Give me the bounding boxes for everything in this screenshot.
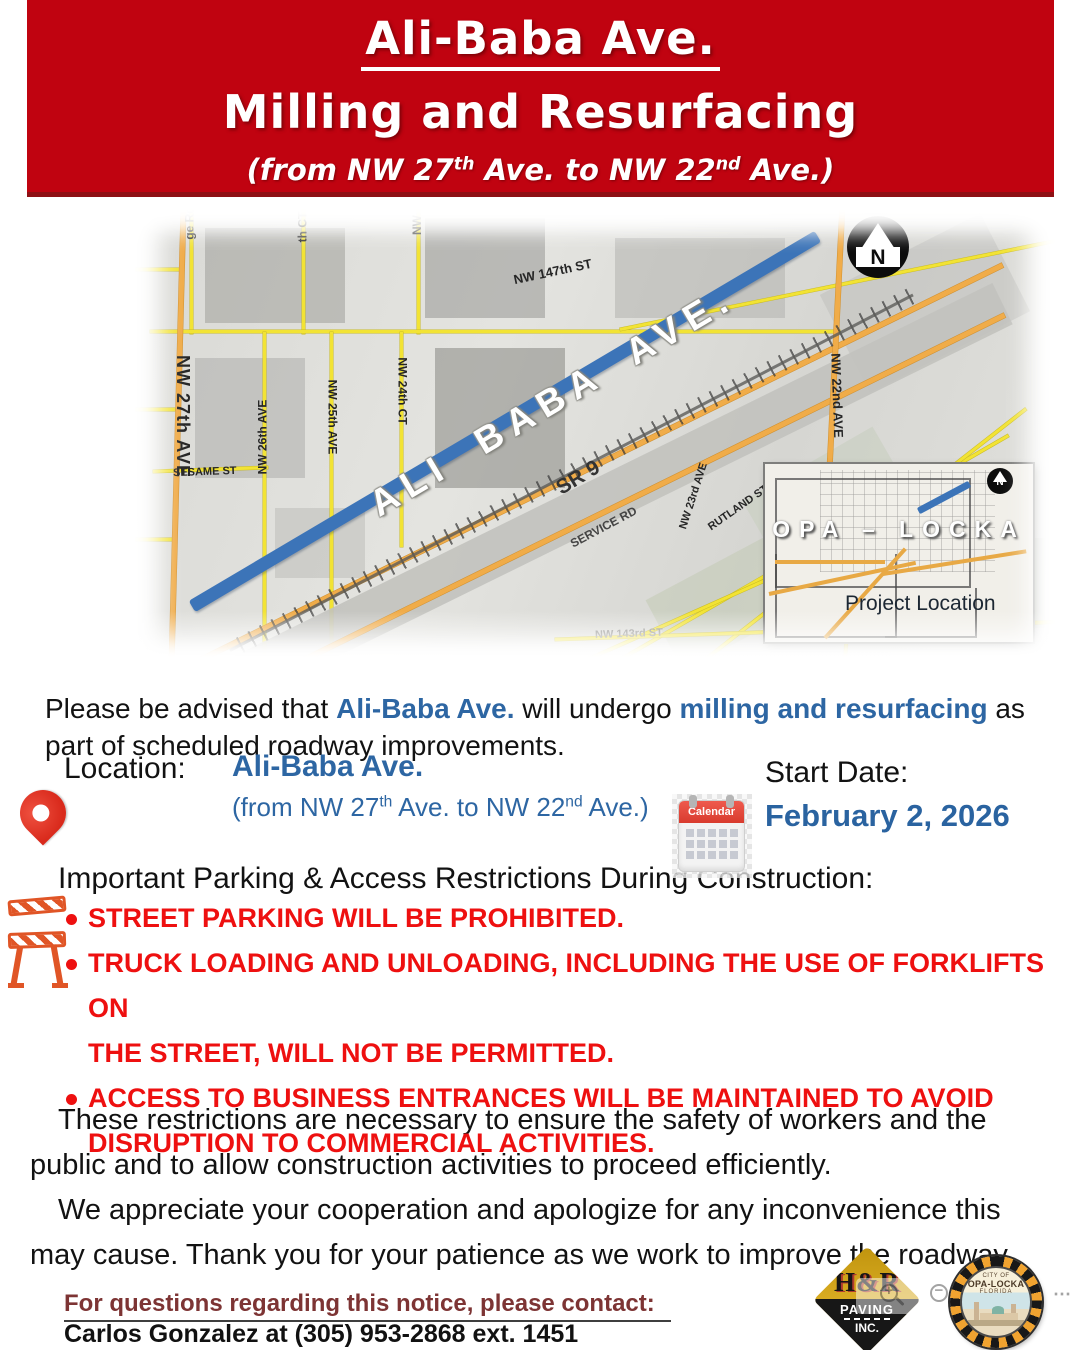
banner-range-p2: Ave. to NW 22 [474,153,715,187]
restriction-line: ACCESS TO BUSINESS ENTRANCES WILL BE MAI… [88,1076,1047,1121]
start-date-value: February 2, 2026 [765,798,1010,834]
location-range-p1: (from NW 27 [232,792,379,822]
opa-locka-city-seal: CITY OF OPA-LOCKA FLORIDA [950,1256,1042,1348]
inset-road [775,560,885,564]
location-range-sup2: nd [565,793,582,810]
restriction-item: STREET PARKING WILL BE PROHIBITED. [62,896,1047,941]
seal-name: OPA-LOCKA [962,1279,1030,1289]
banner-title: Ali-Baba Ave. [361,12,719,71]
intro-text: will undergo [515,693,680,724]
seal-skyline [968,1300,1024,1326]
hr-paving-dash [844,1318,890,1320]
restriction-line: STREET PARKING WILL BE PROHIBITED. [88,896,1047,941]
map-building [205,228,345,323]
street-label: NW 22nd AVE [828,353,846,438]
barricade-rail [7,896,66,917]
flyer-page: Ali-Baba Ave. Milling and Resurfacing (f… [0,0,1080,1350]
inset-north-arrow-icon: N [987,468,1013,494]
location-range-p2: Ave. to NW 22 [392,792,565,822]
location-range-sup1: th [379,793,392,810]
seal-base [968,1320,1024,1326]
restriction-line: TRUCK LOADING AND UNLOADING, INCLUDING T… [88,941,1047,1031]
location-range: (from NW 27th Ave. to NW 22nd Ave.) [232,792,649,823]
seal-inner: CITY OF OPA-LOCKA FLORIDA [960,1266,1032,1338]
calendar-icon-body: Calendar [678,800,745,872]
location-range-p3: Ave.) [583,792,649,822]
banner-range-sup2: nd [716,154,741,174]
contact-info: Carlos Gonzalez at (305) 953-2868 ext. 1… [64,1320,578,1349]
intro-highlight-work: milling and resurfacing [680,693,988,724]
construction-barricade-icon [6,892,70,988]
intro-paragraph: Please be advised that Ali-Baba Ave. wil… [45,690,1050,764]
start-date-label: Start Date: [765,756,908,790]
map-street-line [135,408,175,411]
barricade-leg [50,944,63,986]
intro-line-1: Please be advised that Ali-Baba Ave. wil… [45,690,1050,727]
seal-florida: FLORIDA [962,1289,1030,1295]
map-street-line [135,268,180,271]
contact-label: For questions regarding this notice, ple… [64,1290,671,1322]
inset-north-letter: N [987,477,1013,488]
inset-region-label: OPA – LOCKA [765,516,1033,543]
barricade-foot [52,983,68,988]
barricade-leg [10,944,23,986]
street-label: NW 25th AVE [325,380,339,455]
location-label: Location: [64,752,186,786]
street-label: NW 24th CT [396,357,410,424]
closing-p2-line1: We appreciate your cooperation and apolo… [30,1188,1045,1233]
restriction-line: DISRUPTION TO COMMERCIAL ACTIVITIES. [88,1121,1047,1166]
banner-range: (from NW 27th Ave. to NW 22nd Ave.) [27,153,1054,187]
zoom-in-icon[interactable] [880,1284,898,1302]
zoom-out-icon[interactable] [930,1284,948,1302]
street-label: th CT [295,212,309,243]
hr-paving-inc: INC. [813,1321,920,1335]
more-options-icon[interactable]: ⋯ [1053,1284,1072,1305]
map-street-line [263,332,266,666]
project-map: ALI BABA AVE. ge Rd th CT NW NW 147th ST… [135,208,1055,666]
banner-subtitle: Milling and Resurfacing [27,85,1054,139]
calendar-grid [679,829,744,859]
map-street-line [135,538,175,541]
north-arrow-icon: N [847,216,909,278]
map-building [195,358,305,478]
intro-text: Please be advised that [45,693,336,724]
inset-caption: Project Location [845,592,996,616]
banner-range-sup1: th [454,154,475,174]
street-label: NW 27th AVE [172,355,193,478]
calendar-icon: Calendar [672,794,752,878]
street-label: NW [410,215,424,235]
map-building [425,218,545,318]
street-label: NW 143rd ST [595,627,663,641]
restrictions-heading: Important Parking & Access Restrictions … [58,862,1058,896]
banner-range-p1: (from NW 27 [247,153,454,187]
barricade-foot [8,983,24,988]
restrictions-list: STREET PARKING WILL BE PROHIBITED. TRUCK… [62,896,1047,1166]
barricade-rail [8,931,67,949]
street-label: NW 26th AVE [255,400,269,475]
intro-highlight-road: Ali-Baba Ave. [336,693,514,724]
calendar-ring [726,795,734,808]
intro-text: as [988,693,1025,724]
banner: Ali-Baba Ave. Milling and Resurfacing (f… [27,0,1054,197]
street-label: ge Rd [183,208,197,240]
seal-dome [992,1306,1004,1314]
restriction-item: TRUCK LOADING AND UNLOADING, INCLUDING T… [62,941,1047,1076]
restriction-line: THE STREET, WILL NOT BE PERMITTED. [88,1031,1047,1076]
calendar-ring [689,795,697,808]
restriction-item: ACCESS TO BUSINESS ENTRANCES WILL BE MAI… [62,1076,1047,1166]
north-arrow-letter: N [847,246,909,270]
location-pin-icon [10,780,75,845]
inset-locator-map: OPA – LOCKA Project Location N [763,462,1035,644]
street-label: SESAME ST [173,465,237,479]
location-road-name: Ali-Baba Ave. [232,750,423,784]
map-street-line [150,330,840,333]
banner-range-p3: Ave.) [741,153,835,187]
